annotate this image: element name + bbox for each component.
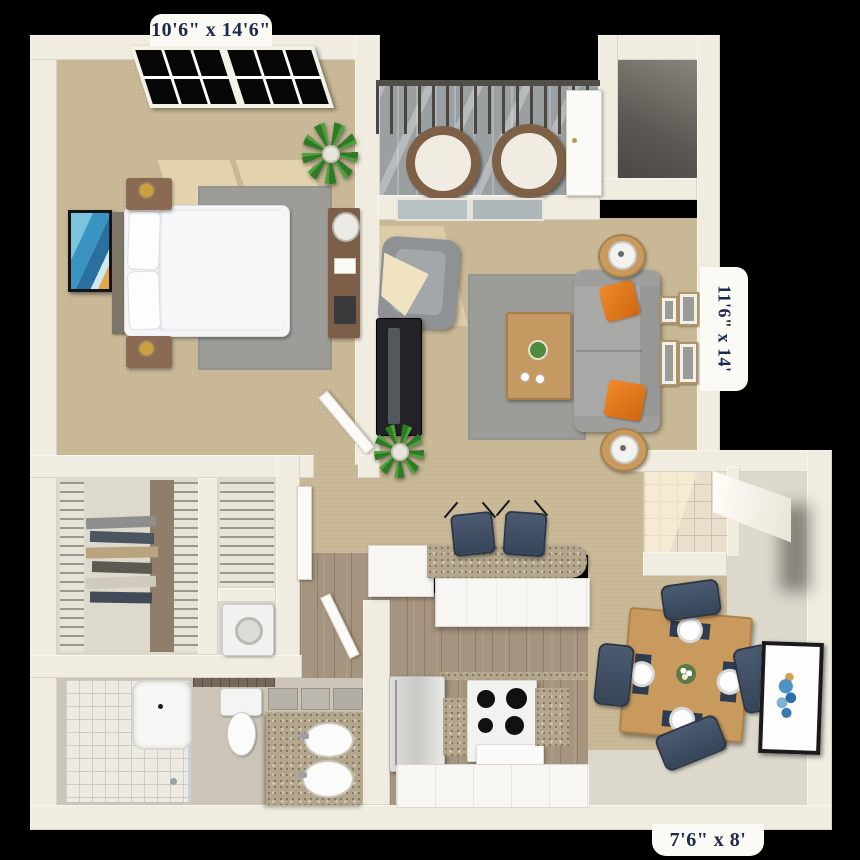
vanity-sink [304, 722, 354, 758]
desk-lamp [332, 212, 360, 242]
wall-bedroom-bottom [30, 455, 314, 478]
living-room-dimension-label: 11'6" x 14' [700, 267, 748, 391]
stove-burner [477, 690, 495, 708]
closet-door [297, 486, 312, 580]
storage-door-knob [572, 138, 577, 143]
patio-chair [492, 124, 566, 198]
gallery-frame [660, 296, 678, 324]
sofa-pillow-orange [603, 379, 647, 422]
linen-shelving [220, 482, 274, 586]
bedroom-plant [302, 122, 358, 184]
wall-closet-divider [198, 478, 218, 655]
vanity-mirror-cabinets [268, 688, 363, 710]
stove-burner [506, 688, 527, 709]
floor-plan: 10'6" x 14'6" 11'6" x 14' 7'6" x 8' [0, 0, 860, 860]
dining-wall-art [758, 641, 824, 755]
bath-wood-accent [193, 678, 275, 687]
stove-burner [478, 718, 493, 733]
gallery-frame [678, 292, 699, 326]
refrigerator [389, 676, 445, 772]
washer-door [235, 617, 263, 645]
bedroom-dimension-label: 10'6" x 14'6" [150, 14, 272, 46]
sink-faucet [300, 733, 309, 739]
bedroom-wall-art [68, 210, 112, 292]
bed-duvet [158, 209, 284, 331]
patio-chair [406, 126, 480, 200]
bar-stool [446, 500, 496, 554]
wall-left-outer [30, 35, 57, 830]
refrigerator-handle [395, 680, 397, 766]
nightstand-lamp [140, 184, 153, 197]
bedroom-window [130, 46, 334, 108]
desk-papers [334, 258, 356, 274]
sink-faucet [298, 772, 307, 778]
sofa-cushion-seam [576, 350, 642, 352]
art-print [770, 655, 805, 732]
wall-right-upper [697, 35, 720, 455]
gallery-frame [678, 342, 698, 384]
kitchen-backsplash [440, 672, 588, 680]
kitchen-dimension-label: 7'6" x 8' [652, 824, 764, 856]
toilet-bowl [227, 712, 256, 756]
bed-pillow [127, 270, 161, 330]
wall-bath-top [30, 655, 302, 678]
bar-stool [498, 498, 548, 554]
desk-item [334, 296, 356, 324]
bar-cabinet-front [435, 578, 590, 627]
kitchen-dimension-text: 7'6" x 8' [670, 829, 747, 852]
wall-bath-right [363, 600, 390, 805]
wall-linen-divider [218, 588, 276, 602]
dinner-plate [676, 616, 704, 644]
tv-screen [388, 328, 400, 424]
dining-table [619, 607, 754, 743]
closet-shelving [60, 482, 84, 652]
window-sash [227, 50, 329, 104]
living-room-dimension-text: 11'6" x 14' [714, 285, 735, 373]
kitchen-counter [443, 698, 467, 756]
bedroom-dimension-text: 10'6" x 14'6" [151, 19, 271, 42]
window-sash [135, 50, 237, 104]
dining-chair [593, 642, 635, 707]
stove-burner [505, 716, 524, 735]
nightstand-lamp [140, 342, 153, 355]
coffee-table-plant [528, 340, 548, 360]
kitchen-counter [535, 688, 569, 746]
kitchen-counter-left [368, 545, 434, 597]
wall-dining-entry-stub [643, 552, 727, 576]
table-lamp-finial [618, 251, 624, 257]
sliding-glass-door [396, 198, 544, 221]
closet-shelving [174, 482, 198, 652]
shower-fixture [170, 778, 177, 785]
bathtub [132, 680, 192, 750]
table-lamp-finial [620, 445, 626, 451]
coffee-table-cup [535, 374, 545, 384]
folded-clothes [86, 514, 162, 630]
tub-drain [158, 704, 163, 709]
gallery-frame [660, 340, 678, 386]
wall-storage-bottom [598, 178, 697, 200]
kitchen-cabinets [396, 764, 590, 808]
coffee-table-cup [520, 372, 530, 382]
vanity-sink [302, 760, 354, 798]
bed-pillow [127, 210, 161, 270]
storage-door [566, 90, 602, 196]
centerpiece-flowers [675, 663, 697, 685]
storage-closet-floor [616, 58, 699, 180]
living-plant [374, 424, 424, 478]
wall-right-lower [807, 450, 832, 830]
